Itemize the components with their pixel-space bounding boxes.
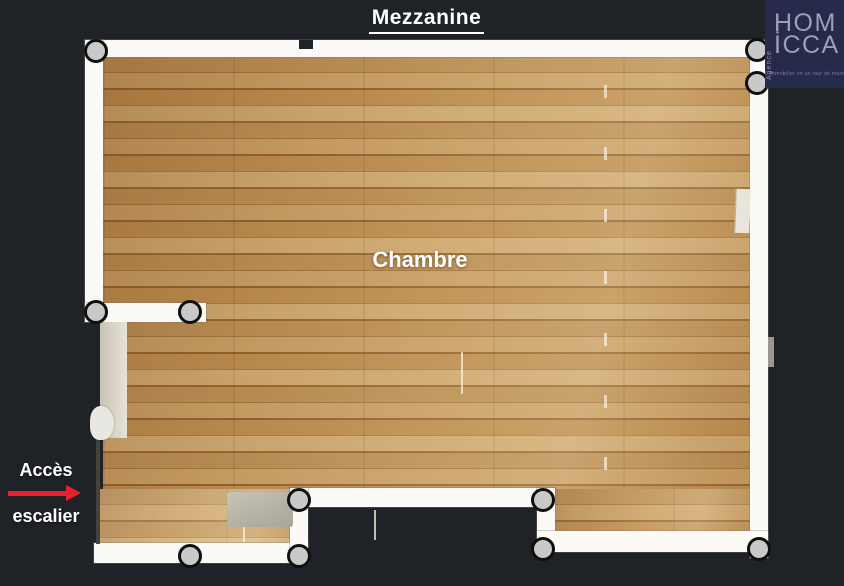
title-bar: Mezzanine [85, 6, 768, 34]
stair-opening-edge [96, 437, 100, 544]
scan-point[interactable] [531, 488, 555, 512]
scan-point[interactable] [84, 39, 108, 63]
wall-notch-top [290, 488, 555, 507]
scan-point[interactable] [287, 544, 311, 568]
arrow-head-icon [66, 485, 81, 501]
arrow-shaft [8, 491, 68, 496]
wall-top-gap [299, 40, 313, 49]
wall-bottom-right [537, 531, 768, 552]
stair-access-arrow [4, 485, 88, 501]
wall-left [85, 40, 103, 322]
scan-point[interactable] [178, 544, 202, 568]
scan-point[interactable] [178, 300, 202, 324]
access-label-line2: escalier [4, 506, 88, 527]
floor-main [103, 57, 750, 489]
scan-point[interactable] [84, 300, 108, 324]
stair-access-annotation: Accès escalier [4, 460, 88, 527]
scan-point[interactable] [747, 537, 771, 561]
wall-fixture [768, 337, 774, 367]
logo-line2: İCCA [774, 34, 844, 56]
stair-landing-patch [227, 492, 293, 527]
floorplan-page: Mezzanine Chambre [0, 0, 844, 586]
plank-seam-highlights [604, 85, 607, 485]
scan-point[interactable] [531, 537, 555, 561]
wall-right [750, 40, 768, 558]
wall-top [85, 40, 768, 57]
room-label: Chambre [340, 247, 500, 273]
scan-point[interactable] [287, 488, 311, 512]
logo-tagline: L'immobilier en un tour de main [765, 71, 844, 77]
plank-seam-highlight [374, 510, 376, 540]
floor-bottom-right [543, 489, 750, 532]
logo-wordmark: HOM İCCA [765, 0, 844, 56]
floor-object [90, 406, 114, 440]
plank-seam-highlight [461, 352, 463, 394]
page-title: Mezzanine [369, 6, 485, 34]
homicca-logo: Agence HOM İCCA L'immobilier en un tour … [765, 0, 844, 88]
open-door-leaf [734, 189, 751, 233]
access-label-line1: Accès [4, 460, 88, 481]
